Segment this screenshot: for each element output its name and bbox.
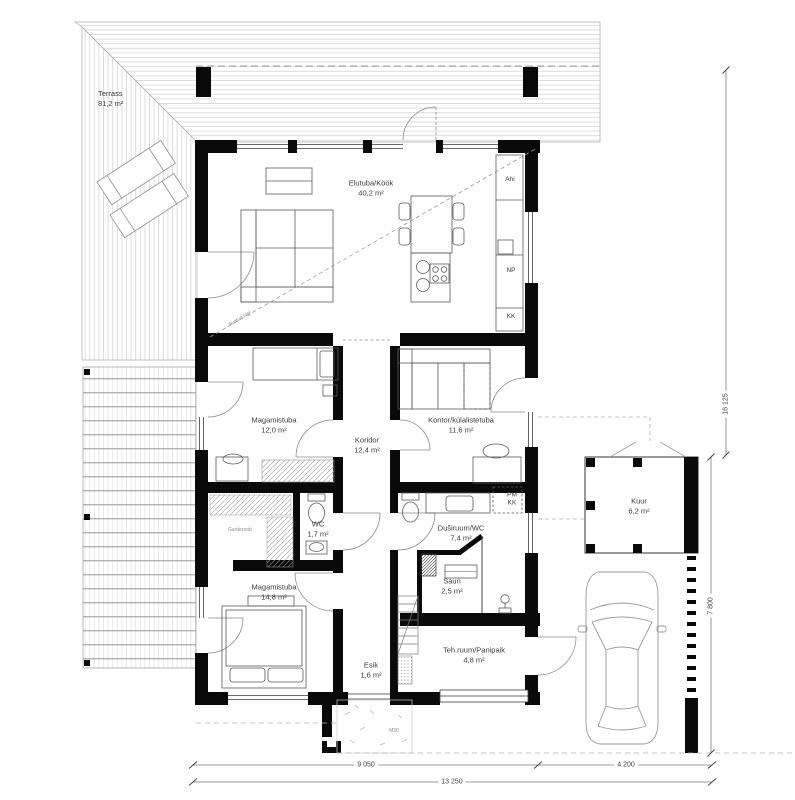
room-name: Koridor (354, 435, 379, 445)
room-label-dusiruum: Duširuum/WC 7,4 m² (438, 523, 485, 543)
sauna-fixtures (421, 554, 477, 578)
room-label-esik: Esik 1,6 m² (360, 660, 381, 680)
room-label-koridor: Koridor 12,4 m² (354, 435, 379, 455)
room-area: 6,2 m² (628, 506, 649, 516)
room-label-garderoob: Garderoob (228, 527, 252, 534)
floorplan-page: Terrass 81,2 m² Elutuba/Köök 40,2 m² Ahi… (0, 0, 795, 800)
room-name: WC (307, 519, 328, 529)
room-label-kontor: Kontor/külalistetuba 11,6 m² (428, 415, 494, 435)
room-label-saun: Saun 2,5 m² (441, 576, 462, 596)
dimension-bottom-total: 13 250 (438, 777, 465, 786)
room-name: Magamistuba (251, 415, 296, 425)
room-label-kuur: Kuur 6,2 m² (628, 496, 649, 516)
room-label-elutuba-kook: Elutuba/Köök 40,2 m² (349, 178, 394, 198)
sofa (241, 168, 333, 302)
bedroom2-furniture (222, 596, 306, 688)
room-label-magamistuba-1: Magamistuba 12,0 m² (251, 415, 296, 435)
appliance-label-pm: PM (507, 492, 517, 500)
room-name: Esik (360, 660, 381, 670)
room-area: 40,2 m² (349, 188, 394, 198)
dimension-right-upper: 16 125 (721, 390, 730, 417)
room-area: 14,8 m² (251, 592, 296, 602)
room-label-magamistuba-2: Magamistuba 14,8 m² (251, 582, 296, 602)
room-area: 2,5 m² (441, 586, 462, 596)
room-name: Kontor/külalistetuba (428, 415, 494, 425)
appliance-label-np: NP (506, 267, 515, 275)
room-area: 7,4 m² (438, 533, 485, 543)
paving-marks (345, 705, 407, 745)
dimension-right-lower: 7 800 (706, 594, 715, 618)
dimension-bottom-left: 9 050 (354, 760, 378, 769)
room-area: 1,6 m² (360, 670, 381, 680)
room-area: 12,0 m² (251, 425, 296, 435)
appliance-label-ahi: Ahi (505, 176, 514, 184)
room-name: Magamistuba (251, 582, 296, 592)
room-area: 4,8 m² (443, 655, 505, 665)
car (578, 572, 666, 744)
entry-porch (322, 700, 412, 753)
annotation-paving-mark: M30 (389, 728, 399, 735)
room-name: Saun (441, 576, 462, 586)
room-area: 1,7 m² (307, 529, 328, 539)
dimension-bottom-right: 4 200 (614, 760, 638, 769)
room-area: 81,2 m² (98, 99, 123, 109)
dining-table (399, 196, 464, 253)
room-label-wc: WC 1,7 m² (307, 519, 328, 539)
open-ceiling-line (210, 148, 537, 337)
room-label-terrass: Terrass 81,2 m² (98, 89, 123, 109)
room-area: 12,4 m² (354, 445, 379, 455)
appliance-label-kk: KK (507, 313, 516, 321)
room-label-tehruum: Teh.ruum/Panipaik 4,8 m² (443, 645, 505, 665)
door-mat (398, 656, 412, 684)
fence (685, 556, 698, 753)
room-area: 11,6 m² (428, 425, 494, 435)
floorplan-drawing (0, 0, 795, 800)
room-name: Elutuba/Köök (349, 178, 394, 188)
room-name: Teh.ruum/Panipaik (443, 645, 505, 655)
room-name: Duširuum/WC (438, 523, 485, 533)
appliance-label-kk2: KK (507, 500, 517, 508)
kitchen-island (411, 253, 450, 302)
room-name: Terrass (98, 89, 123, 99)
room-name: Kuur (628, 496, 649, 506)
appliance-label-pm-kk: PM KK (507, 492, 517, 509)
